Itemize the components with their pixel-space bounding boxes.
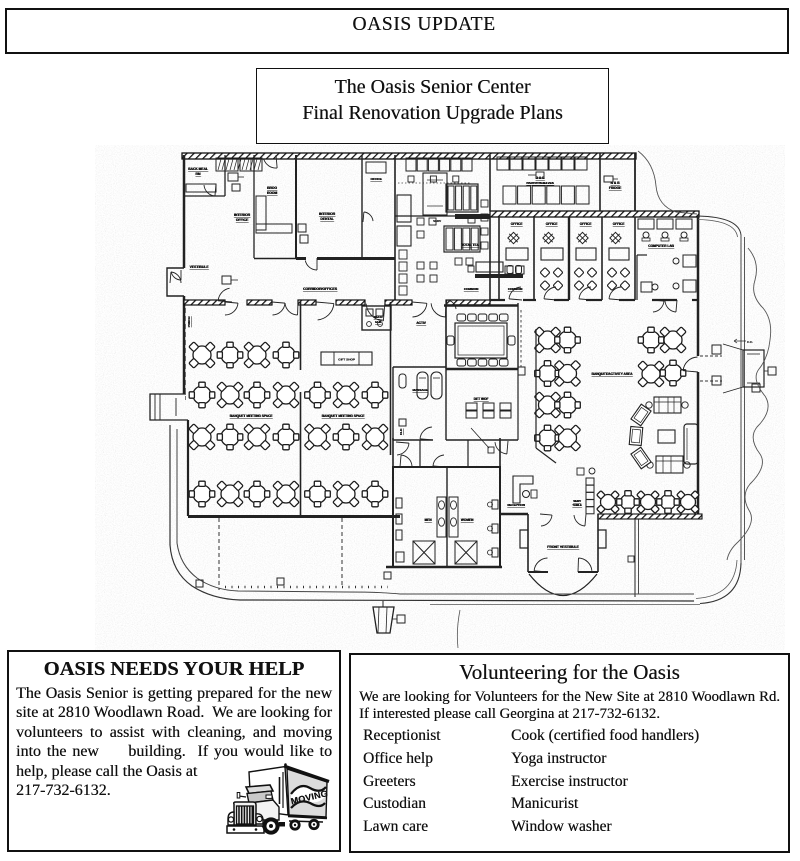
svg-text:RECEPTION: RECEPTION xyxy=(507,503,525,507)
svg-text:MECH: MECH xyxy=(374,315,383,319)
svg-text:BANQUET MEETING SPACE: BANQUET MEETING SPACE xyxy=(322,414,365,418)
svg-text:BANQUET/ACTIVITY AREA: BANQUET/ACTIVITY AREA xyxy=(592,372,634,376)
svg-text:OFFICE: OFFICE xyxy=(370,177,381,181)
svg-text:VESTIBULE: VESTIBULE xyxy=(189,265,209,269)
svg-text:DENTAL: DENTAL xyxy=(320,217,334,221)
svg-text:C.C.: C.C. xyxy=(747,340,753,344)
svg-text:BROO: BROO xyxy=(267,186,277,190)
svg-text:BACK MEAL: BACK MEAL xyxy=(188,167,208,171)
svg-text:OFFICE: OFFICE xyxy=(546,222,558,226)
svg-text:INTERIOR: INTERIOR xyxy=(319,212,336,216)
svg-text:CLO: CLO xyxy=(399,428,403,435)
svg-text:TABLE: TABLE xyxy=(572,503,581,507)
svg-text:FRIDGE: FRIDGE xyxy=(609,186,622,190)
svg-text:RM: RM xyxy=(195,172,200,176)
svg-text:OFFICE: OFFICE xyxy=(511,222,523,226)
svg-text:COMPUTER LAB: COMPUTER LAB xyxy=(648,244,674,248)
svg-text:SERV: SERV xyxy=(433,219,441,223)
svg-text:CORRIDOR/OFFICES: CORRIDOR/OFFICES xyxy=(303,287,338,291)
svg-text:BANQUET MEETING SPACE: BANQUET MEETING SPACE xyxy=(230,414,273,418)
svg-text:GIFT SHOP: GIFT SHOP xyxy=(338,358,355,362)
svg-text:COMMON: COMMON xyxy=(464,287,479,291)
svg-text:ACTIV: ACTIV xyxy=(416,321,426,325)
svg-text:INTERIOR: INTERIOR xyxy=(234,213,251,217)
svg-text:MEN: MEN xyxy=(424,518,432,522)
svg-text:PANTRY/SHELVES: PANTRY/SHELVES xyxy=(526,181,553,185)
svg-text:ROOM: ROOM xyxy=(267,191,278,195)
svg-text:OFFICE: OFFICE xyxy=(580,222,592,226)
svg-text:FRONT VESTIBULE: FRONT VESTIBULE xyxy=(547,545,579,549)
svg-text:PORCH: PORCH xyxy=(187,317,191,328)
svg-text:OFFICE: OFFICE xyxy=(613,222,625,226)
svg-text:OFFICE: OFFICE xyxy=(236,218,249,222)
svg-text:TOTAL TEA: TOTAL TEA xyxy=(461,243,479,247)
svg-text:MASSAGE: MASSAGE xyxy=(412,388,427,392)
svg-text:ELE: ELE xyxy=(375,320,381,324)
svg-text:WOMEN: WOMEN xyxy=(461,518,474,522)
svg-text:DET WOF: DET WOF xyxy=(474,397,489,401)
